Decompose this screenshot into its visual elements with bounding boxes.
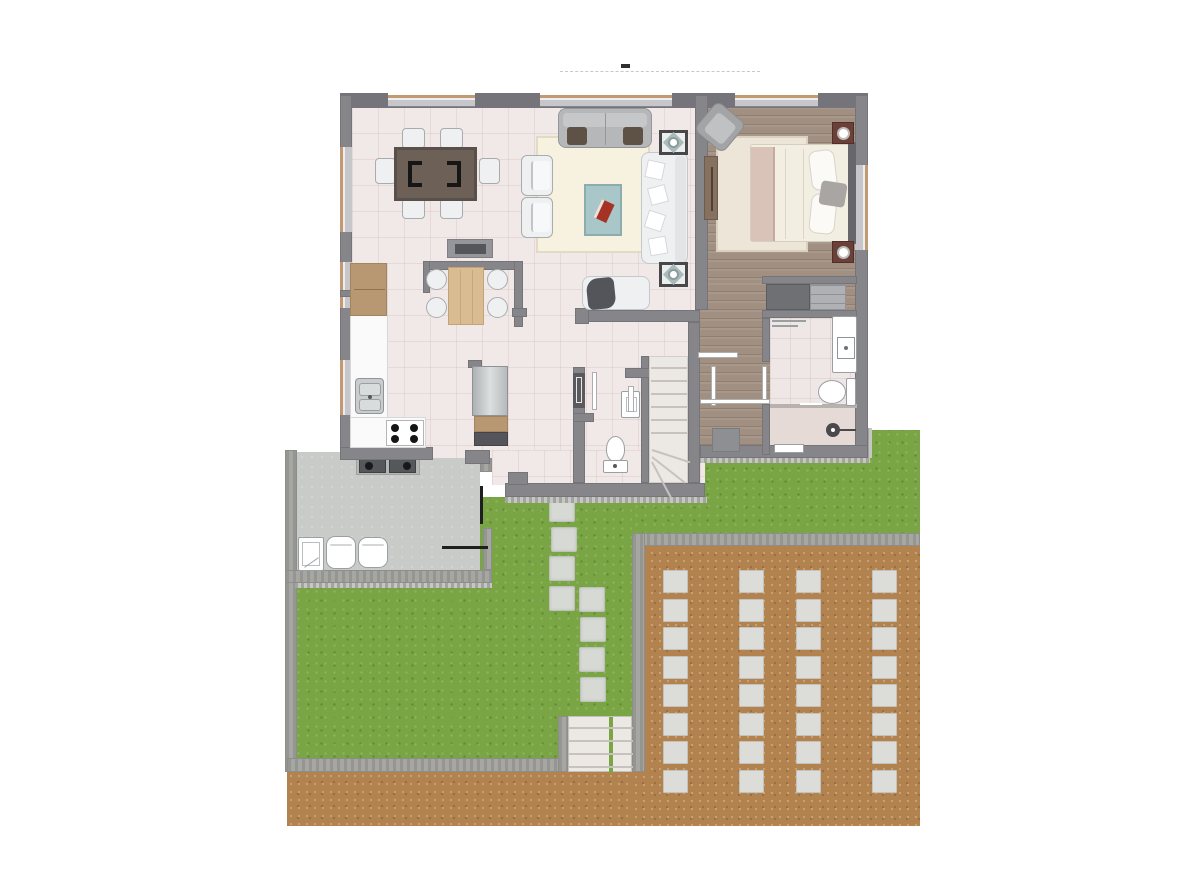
sofa-pillow: [644, 210, 667, 233]
armchair-cushion: [703, 112, 737, 146]
stepping-stone: [579, 647, 605, 672]
bathroom-vanity: [832, 316, 857, 373]
wall-south-kitchen: [340, 447, 433, 460]
stair-tread: [651, 367, 687, 369]
sink-basin: [359, 399, 381, 411]
dining-chair: [402, 198, 425, 219]
sideboard-top: [455, 244, 486, 254]
wall-east: [855, 95, 868, 455]
placemat-left: [408, 161, 422, 187]
cooktop: [386, 420, 424, 446]
driveway-wall-top: [632, 533, 920, 546]
stair-tread: [651, 393, 687, 395]
driveway-paver: [739, 770, 764, 793]
living-armchair: [521, 197, 553, 238]
sideboard: [447, 239, 493, 258]
gravel-border: [505, 497, 707, 503]
driveway-paver: [796, 684, 821, 707]
table-grain-line: [472, 270, 473, 324]
coffee-table-book: [593, 199, 614, 223]
vanity-faucet: [844, 346, 848, 350]
sidewalk-dirt-strip: [287, 772, 632, 826]
shower-arm: [838, 429, 856, 431]
garden-steps-grass-strip: [609, 717, 613, 773]
table-grain-line: [460, 270, 461, 324]
wall-living-south: [577, 310, 700, 322]
kitchen-chair: [426, 269, 447, 290]
laundry-sink: [298, 537, 324, 571]
stepping-stone: [549, 586, 575, 611]
driveway-paver: [796, 570, 821, 593]
property-dashed-line: [560, 71, 760, 72]
dresser-handle: [711, 167, 713, 211]
stair-tread: [651, 419, 687, 421]
halfbath-toilet: [603, 436, 628, 473]
kitchen-dark-cabinet: [474, 432, 508, 446]
refrigerator: [472, 366, 508, 416]
driveway-paver: [739, 713, 764, 736]
stepping-stone: [551, 527, 577, 552]
driveway-paver: [739, 741, 764, 764]
wall-kitchen-nook-right: [514, 261, 523, 327]
wall-north-pier: [475, 93, 540, 108]
shower-head-dot: [831, 428, 835, 432]
driveway-paver: [739, 599, 764, 622]
driveway-paver: [663, 570, 688, 593]
driveway-paver: [872, 627, 897, 650]
door-leaf-hall-open: [700, 399, 770, 404]
dining-chair: [479, 158, 500, 184]
wall-kitchen-nook-stub: [512, 308, 527, 317]
nightstand: [832, 241, 854, 263]
driveway-paver: [872, 570, 897, 593]
dining-chair: [440, 128, 463, 149]
gas-tank: [326, 536, 356, 569]
speaker-cone: [668, 137, 679, 148]
sink-faucet: [368, 395, 372, 399]
stair-tread: [651, 406, 687, 408]
floor-speaker: [659, 130, 688, 155]
gas-tank: [358, 537, 388, 568]
toilet-button: [613, 464, 617, 468]
wall-south-extension: [505, 483, 705, 497]
towel-bar: [772, 320, 806, 322]
stepping-stone: [580, 617, 606, 642]
daybed-bench: [582, 276, 650, 310]
armchair-seat: [531, 161, 550, 190]
cabinet-divider: [354, 289, 385, 290]
dryer-knob: [403, 462, 411, 470]
wall-bedroom-south: [762, 276, 857, 284]
stepping-stone: [580, 677, 606, 702]
lawn-wall-south: [287, 758, 568, 772]
dining-chair: [402, 128, 425, 149]
kitchen-chair: [487, 297, 508, 318]
stepping-stone: [549, 556, 575, 581]
armchair-seat: [531, 203, 550, 232]
nightstand: [832, 122, 854, 144]
driveway-paver: [739, 570, 764, 593]
dining-chair: [375, 158, 396, 184]
driveway-paver: [796, 656, 821, 679]
wall-hall-bath-upper: [762, 318, 770, 362]
living-armchair: [521, 155, 553, 196]
shower-head: [826, 423, 860, 437]
patio-gate-leaf: [480, 486, 483, 524]
placemat-right: [447, 161, 461, 187]
stair-tread: [651, 380, 687, 382]
kitchen-wood-cabinet: [350, 263, 387, 316]
bed-foot-blanket: [751, 147, 775, 241]
patio-gate-leaf-open: [442, 546, 488, 549]
driveway-paver: [663, 627, 688, 650]
toilet-bowl: [606, 436, 625, 462]
burner: [410, 424, 418, 432]
driveway-paver: [663, 599, 688, 622]
driveway-paver: [796, 599, 821, 622]
table-lamp: [837, 246, 850, 259]
staircase: [649, 356, 688, 483]
dining-table: [394, 147, 477, 201]
window-bedroom-north: [735, 95, 818, 106]
stepping-stone: [579, 587, 605, 612]
driveway-paver: [872, 684, 897, 707]
dining-chair: [440, 198, 463, 219]
loveseat: [558, 108, 652, 148]
kitchen-table: [448, 267, 484, 325]
wall-south-pier: [465, 450, 490, 464]
garden-step-tread: [569, 727, 633, 729]
burner: [391, 435, 399, 443]
driveway-paver: [872, 599, 897, 622]
floor-plan-canvas: [0, 0, 1200, 887]
bedroom-dresser: [704, 156, 718, 220]
driveway-paver: [663, 713, 688, 736]
kitchen-chair: [487, 269, 508, 290]
gas-tank-lid-line: [330, 544, 352, 546]
kitchen-chair: [426, 297, 447, 318]
north-tick-mark: [621, 64, 630, 68]
window-living-north: [540, 95, 672, 106]
door-leaf-hall: [698, 352, 738, 358]
cabinet-line: [576, 377, 582, 403]
sofa-pillow: [647, 184, 669, 206]
bath-mat: [774, 444, 804, 453]
garden-step-tread: [569, 740, 633, 742]
garden-wall-west: [285, 450, 297, 772]
driveway-paver: [872, 713, 897, 736]
closet-unit-shelves: [810, 284, 846, 310]
bed-throw: [818, 180, 847, 208]
burner: [410, 435, 418, 443]
table-lamp: [837, 127, 850, 140]
towel-bar: [772, 325, 798, 327]
speaker-cone: [668, 269, 679, 280]
patio-wall-right-lower: [483, 528, 492, 570]
toilet-tank: [846, 378, 856, 406]
driveway-paver: [663, 656, 688, 679]
driveway-paver: [872, 770, 897, 793]
driveway-paver: [872, 741, 897, 764]
door-leaf-entry: [628, 386, 634, 412]
washer-knob: [365, 462, 373, 470]
kitchen-lower-cabinet: [474, 416, 508, 432]
window-dining-north: [388, 95, 475, 106]
gravel-border: [295, 583, 492, 588]
driveway-paver: [663, 684, 688, 707]
duvet-fold-line: [785, 149, 786, 239]
sofa-backrest: [675, 156, 686, 262]
toilet-bowl: [818, 380, 846, 404]
bed-headboard: [848, 142, 856, 244]
driveway-wall-left: [632, 533, 645, 772]
driveway-paver: [739, 656, 764, 679]
window-bedroom-east: [855, 165, 868, 250]
garden-steps: [568, 716, 632, 772]
wall-hall-bath-lower: [762, 404, 770, 455]
driveway-paver: [872, 656, 897, 679]
wall-entry-stub: [625, 368, 650, 378]
driveway-paver: [796, 627, 821, 650]
duvet-fold-line: [803, 149, 804, 239]
loveseat-divider: [605, 113, 606, 145]
garden-step-tread: [569, 753, 633, 755]
garden-steps-wall: [558, 716, 568, 772]
wall-entry-corner: [508, 472, 528, 485]
door-leaf-halfbath: [592, 372, 597, 410]
floor-speaker: [659, 262, 688, 287]
window-dining-west: [340, 147, 352, 232]
sofa-pillow: [644, 159, 665, 180]
burner: [391, 424, 399, 432]
driveway-paver: [796, 713, 821, 736]
sofa: [641, 152, 688, 264]
loveseat-arm-cushion: [623, 127, 643, 145]
kitchen-sink: [355, 378, 384, 414]
loveseat-arm-cushion: [567, 127, 587, 145]
bench-throw-blanket: [585, 277, 616, 311]
driveway-paver: [663, 770, 688, 793]
patio-wall-south: [285, 570, 492, 583]
driveway-paver: [663, 741, 688, 764]
closet-unit-dark: [766, 284, 810, 310]
wall-living-south-cap: [575, 308, 589, 324]
wall-stub-west: [573, 413, 594, 422]
coffee-table: [584, 184, 622, 236]
stair-tread: [651, 432, 687, 434]
bathroom-toilet: [818, 377, 856, 405]
driveway-paver: [739, 684, 764, 707]
driveway-paver: [796, 741, 821, 764]
halfbath-tall-cabinet: [573, 373, 585, 408]
gas-tank-lid-line: [362, 544, 384, 546]
wall-stair-east: [688, 322, 700, 483]
sofa-pillow: [648, 236, 669, 257]
garden-step-tread: [569, 766, 633, 768]
driveway-paver: [796, 770, 821, 793]
driveway-paver: [739, 627, 764, 650]
entry-doormat: [712, 428, 740, 452]
